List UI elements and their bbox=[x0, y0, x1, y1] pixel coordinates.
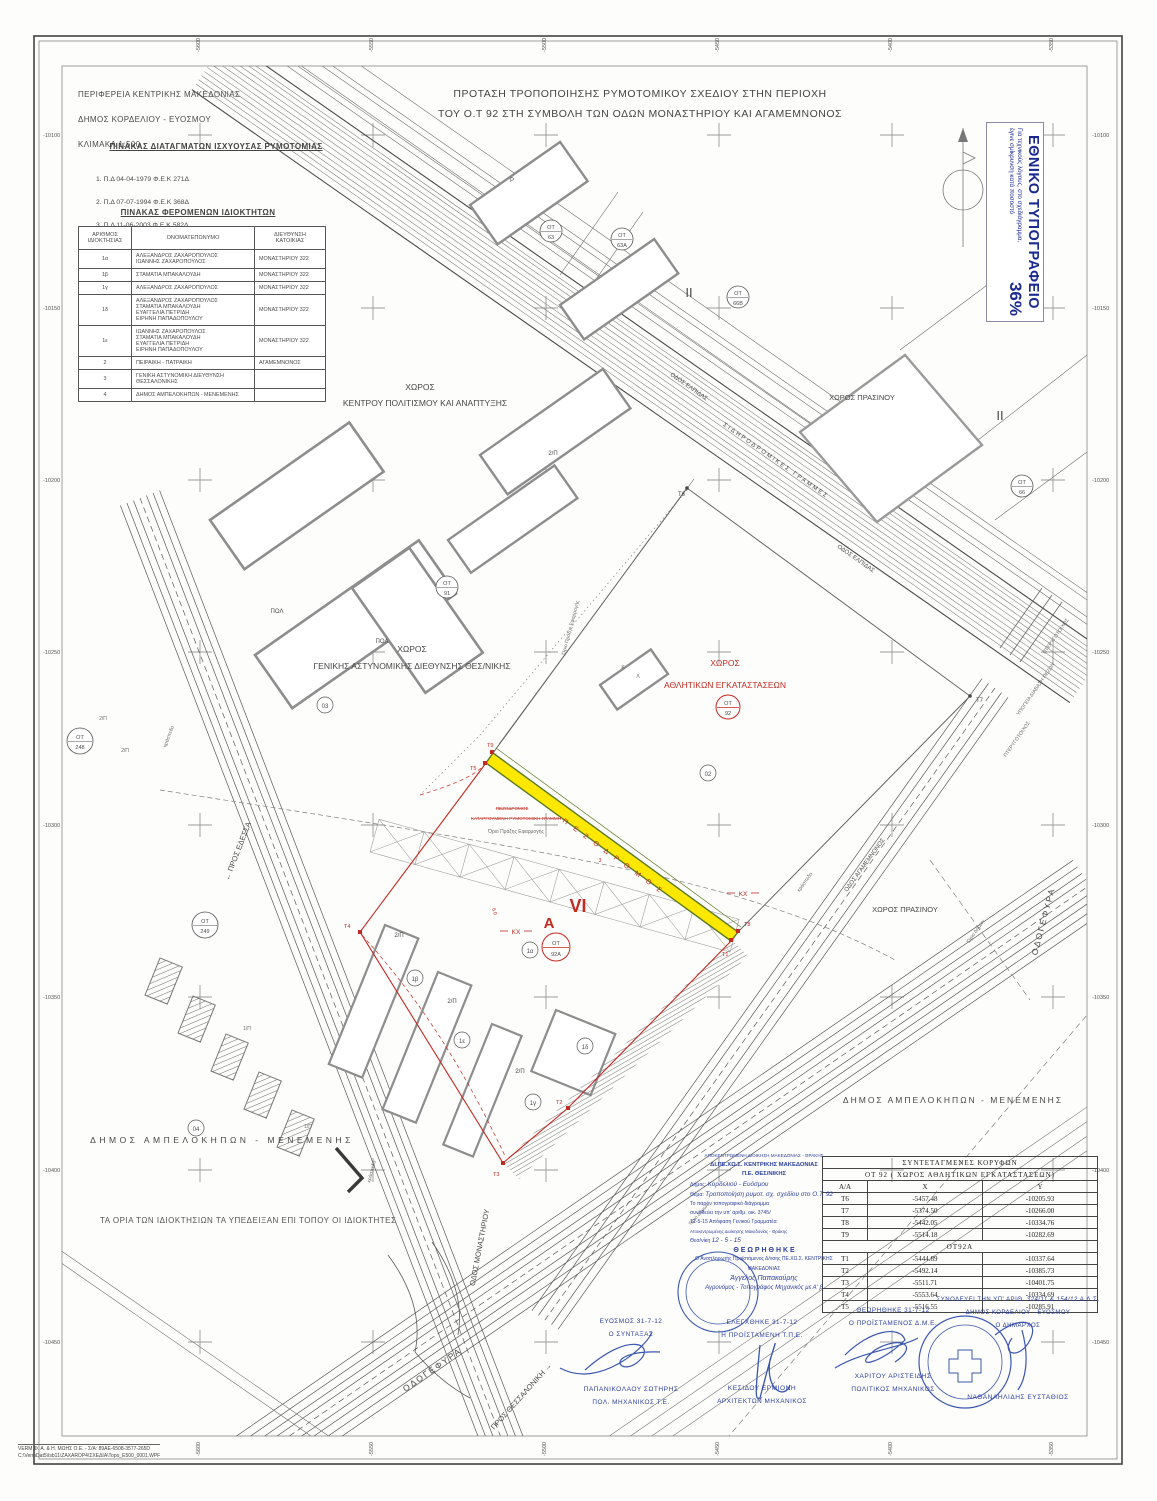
owners-col2: ΟΝΟΜΑΤΕΠΩΝΥΜΟ bbox=[132, 227, 255, 250]
tick: -10150 bbox=[1092, 306, 1109, 312]
label-struck-1: ΠΕΖΟΔΡΟΜΟΣ bbox=[496, 806, 529, 811]
label-t4: Τ4 bbox=[344, 924, 350, 930]
label-t7: Τ7 bbox=[976, 698, 984, 704]
coords-row: Τ2-5492.14-10385.73 bbox=[823, 1265, 1098, 1277]
national-printing-office-stamp: ΕΘΝΙΚΟ ΤΥΠΟΓΡΑΦΕΙΟ Για τεχνικούς λόγους,… bbox=[986, 122, 1044, 322]
coords-group-row: ΟΤ92Α bbox=[823, 1241, 1098, 1253]
tick: -5400 bbox=[888, 1442, 894, 1456]
label-zone-ii-2: II bbox=[996, 408, 1003, 423]
tick: -5500 bbox=[542, 1442, 548, 1456]
svg-text:66: 66 bbox=[1019, 490, 1025, 496]
owners-row: 1γΑΛΕΞΑΝΔΡΟΣ ΖΑΧΑΡΟΠΟΥΛΟΣΜΟΝΑΣΤΗΡΙΟΥ 322 bbox=[79, 282, 326, 295]
tick: -5450 bbox=[715, 38, 721, 52]
label-agamemnonos: ΟΔΟΣ ΑΓΑΜΕΜΝΟΝΟΣ bbox=[844, 837, 887, 893]
svg-text:ΟΤ: ΟΤ bbox=[552, 941, 560, 947]
tick: -10100 bbox=[1092, 133, 1109, 139]
tick: -5600 bbox=[196, 1442, 202, 1456]
tick: -10250 bbox=[43, 650, 60, 656]
id-03: 03 bbox=[317, 697, 333, 713]
plan-sheet: -5600 -5550 -5500 -5450 -5400 -5350 -560… bbox=[0, 0, 1157, 1501]
svg-text:ΟΤ: ΟΤ bbox=[724, 701, 732, 707]
tick: -10350 bbox=[1092, 995, 1109, 1001]
city-value: 12 - 5 - 15 bbox=[712, 1237, 741, 1244]
tick: -10450 bbox=[43, 1340, 60, 1346]
dipexos-theorithike: Θ Ε Ω Ρ Η Θ Η Κ Ε bbox=[690, 1246, 838, 1256]
label-struck-2: ΚΑΤΑΡΓΟΥΜΕΝΗ ΡΥΜΟΤΟΜΙΚΗ ΓΡΑΜΜΗ bbox=[471, 816, 561, 821]
owners-header-row: ΑΡΙΘΜΟΣ ΙΔΙΟΚΤΗΣΙΑΣ ΟΝΟΜΑΤΕΠΩΝΥΜΟ ΔΙΕΥΘΥ… bbox=[79, 227, 326, 250]
svg-text:03: 03 bbox=[322, 704, 329, 710]
dipexos-stamp: ΑΠΟΚΕΝΤΡΩΜΕΝΗ ΔΙΟΙΚΗΣΗ ΜΑΚΕΔΟΝΙΑΣ - ΘΡΑΚ… bbox=[690, 1151, 838, 1293]
owners-row: 4ΔΗΜΟΣ ΑΜΠΕΛΟΚΗΠΩΝ - ΜΕΝΕΜΕΝΗΣ bbox=[79, 389, 326, 402]
npo-note-1: Για τεχνικούς λόγους, στο σχεδιάγραμμα, bbox=[1015, 128, 1023, 242]
tick: -5550 bbox=[369, 38, 375, 52]
svg-text:92: 92 bbox=[725, 711, 731, 717]
svg-text:ΟΤ: ΟΤ bbox=[734, 291, 742, 297]
id-1d: 1δ bbox=[577, 1038, 593, 1054]
checked-name: ΚΕΣΙΔΟΥ ΕΡΜΙΟΝΗ bbox=[698, 1382, 826, 1395]
id-1a: 1α bbox=[522, 942, 538, 958]
coords-row: Τ6-5457.48-10205.93 bbox=[823, 1193, 1098, 1205]
coords-row: Τ1-5444.89-10337.64 bbox=[823, 1253, 1098, 1265]
owners-row: 1εΙΩΑΝΝΗΣ ΖΑΧΑΡΟΠΟΥΛΟΣ ΣΤΑΜΑΤΙΑ ΜΠΑΚΑΛΟΥ… bbox=[79, 326, 326, 357]
label-sector-a: Α bbox=[544, 915, 555, 932]
label-t6: Τ6 bbox=[678, 492, 686, 498]
tick: -10400 bbox=[43, 1168, 60, 1174]
label-1p-1: 1/Π bbox=[304, 1124, 312, 1130]
owners-col3: ΔΙΕΥΘΥΝΣΗ ΚΑΤΟΙΚΙΑΣ bbox=[255, 227, 326, 250]
svg-text:ΟΤ: ΟΤ bbox=[1018, 480, 1026, 486]
id-04: 04 bbox=[188, 1120, 204, 1136]
thema-value: Τροποποίηση ρυμοτ. σχ. σχεδίου στο Ο.Τ. … bbox=[705, 1191, 833, 1198]
dipexos-body-2: συνοδεύει την υπ' αριθμ. οικ. 3745/ bbox=[690, 1209, 838, 1218]
author-signature-block: ΕΥΟΣΜΟΣ 31-7-12 Ο ΣΥΝΤΑΞΑΣ ΠΑΠΑΝΙΚΟΛΑΟΥ … bbox=[566, 1315, 696, 1409]
tick: -10300 bbox=[1092, 823, 1109, 829]
truss-structures bbox=[370, 819, 739, 952]
svg-text:02: 02 bbox=[705, 772, 712, 778]
coords-row: Τ8-5442.05-10334.76 bbox=[823, 1217, 1098, 1229]
mayor-role: Ο ΔΗΜΑΡΧΟΣ bbox=[918, 1320, 1118, 1333]
mayor-line1b: Α.Δ.Σ. bbox=[1080, 1297, 1100, 1303]
label-choros-kentrou-1: ΧΩΡΟΣ bbox=[405, 382, 435, 392]
svg-text:ΟΤ: ΟΤ bbox=[618, 233, 626, 239]
owners-table-title: ΠΙΝΑΚΑΣ ΦΕΡΟΜΕΝΩΝ ΙΔΙΟΚΤΗΤΩΝ bbox=[88, 208, 308, 217]
label-kraspedo-1: κράσπεδο bbox=[161, 724, 176, 748]
label-t8: Τ8 bbox=[744, 922, 750, 928]
svg-text:1ε: 1ε bbox=[459, 1039, 465, 1045]
dipexos-name: Άγγελος Παπακαύρης bbox=[690, 1274, 838, 1284]
checked-role: Η ΠΡΟΪΣΤΑΜΕΝΗ Τ.Π.Ε. bbox=[698, 1329, 826, 1342]
owners-row: 1βΣΤΑΜΑΤΙΑ ΜΠΑΚΑΛΟΥΔΗΜΟΝΑΣΤΗΡΙΟΥ 322 bbox=[79, 269, 326, 282]
label-choros-kentrou-2: ΚΕΝΤΡΟΥ ΠΟΛΙΤΙΣΜΟΥ ΚΑΙ ΑΝΑΠΤΥΞΗΣ bbox=[343, 398, 507, 408]
west-small-buildings bbox=[145, 958, 314, 1156]
decrees-title: ΠΙΝΑΚΑΣ ΔΙΑΤΑΓΜΑΤΩΝ ΙΣΧΥΟΥΣΑΣ ΡΥΜΟΤΟΜΙΑΣ bbox=[96, 142, 336, 151]
npo-percent: 36% bbox=[1005, 282, 1025, 316]
dipexos-body-3: 12-5-15 Απόφαση Γενικού Γραμματέα bbox=[690, 1218, 838, 1227]
dipexos-title: Αγρονόμος - Τοπογράφος Μηχανικός με Α' β bbox=[690, 1284, 838, 1294]
label-pol-1: ΠΟΛ bbox=[271, 609, 284, 615]
vertex-coordinates-table: ΣΥΝΤΕΤΑΓΜΕΝΕΣ ΚΟΡΥΦΩΝ ΟΤ 92 ( ΧΩΡΟΣ ΑΘΛΗ… bbox=[822, 1156, 1098, 1313]
ot-248: ΟΤ248 bbox=[67, 728, 93, 754]
dipexos-body-1: Το παρόν τοπογραφικό διάγραμμα bbox=[690, 1200, 838, 1209]
author-role: Ο ΣΥΝΤΑΞΑΣ bbox=[566, 1328, 696, 1341]
label-ampelokipon-2: ΔΗΜΟΣ ΑΜΠΕΛΟΚΗΠΩΝ - ΜΕΝΕΜΕΝΗΣ bbox=[843, 1095, 1063, 1105]
tick: -5350 bbox=[1049, 38, 1055, 52]
title-line-2: ΤΟΥ Ο.Τ 92 ΣΤΗ ΣΥΜΒΟΛΗ ΤΩΝ ΟΔΩΝ ΜΟΝΑΣΤΗΡ… bbox=[330, 104, 950, 124]
svg-text:63Α: 63Α bbox=[617, 243, 627, 249]
point-t6-dot bbox=[685, 486, 689, 490]
ot-63a: ΟΤ63Α bbox=[611, 228, 633, 250]
footer-line-1: VERM Φ. Α. & Η. ΜΩΗΣ Ο.Ε. - Σ/Α: 89ΑΕ-65… bbox=[18, 1446, 160, 1453]
svg-text:1δ: 1δ bbox=[582, 1045, 589, 1051]
tick: -5600 bbox=[196, 38, 202, 52]
svg-text:249: 249 bbox=[200, 929, 209, 935]
label-2p-2: 2/Π bbox=[394, 933, 403, 939]
coords-title: ΣΥΝΤΕΤΑΓΜΕΝΕΣ ΚΟΡΥΦΩΝ bbox=[823, 1157, 1098, 1169]
svg-text:ΟΤ: ΟΤ bbox=[547, 225, 555, 231]
label-gad-1: ΧΩΡΟΣ bbox=[397, 644, 427, 654]
label-t5: Τ5 bbox=[470, 766, 476, 772]
owners-indication-note: ΤΑ ΟΡΙΑ ΤΩΝ ΙΔΙΟΚΤΗΣΙΩΝ ΤΑ ΥΠΕΔΕΙΞΑΝ ΕΠΙ… bbox=[100, 1216, 396, 1225]
plot-footer: VERM Φ. Α. & Η. ΜΩΗΣ Ο.Ε. - Σ/Α: 89ΑΕ-65… bbox=[18, 1444, 160, 1460]
kerb-corner bbox=[336, 1148, 362, 1192]
label-gad-2: ΓΕΝΙΚΗΣ ΑΣΤΥΝΟΜΙΚΗΣ ΔΙΕΘΥΝΣΗΣ ΘΕΣ/ΝΙΚΗΣ bbox=[313, 661, 510, 671]
tick: -10150 bbox=[43, 306, 60, 312]
ot-66b: ΟΤ66Β bbox=[727, 286, 749, 308]
dipexos-body-4: Αποκεντρωμένης Διοίκησης Μακεδονίας - Θρ… bbox=[690, 1227, 838, 1236]
label-athlitikon-1: ΧΩΡΟΣ bbox=[710, 658, 740, 668]
ot-63: ΟΤ63 bbox=[540, 220, 562, 242]
label-elpidas-1: ΟΔΟΣ ΕΛΠΙΔΑΣ bbox=[669, 372, 709, 402]
dimos-value: Κορδελιού - Ευόσμου bbox=[708, 1181, 769, 1188]
bottom-left-road-lines bbox=[54, 1250, 330, 1445]
dipexos-line3: Π.Ε. ΘΕΣ/ΝΙΚΗΣ bbox=[690, 1170, 838, 1180]
owners-col1: ΑΡΙΘΜΟΣ ΙΔΙΟΚΤΗΣΙΑΣ bbox=[79, 227, 132, 250]
coords-subtitle: ΟΤ 92 ( ΧΩΡΟΣ ΑΘΛΗΤΙΚΩΝ ΕΓΚΑΤΑΣΤΑΣΕΩΝ) bbox=[823, 1169, 1098, 1181]
checked-title: ΑΡΧΙΤΕΚΤΩΝ ΜΗΧΑΝΙΚΟΣ bbox=[698, 1395, 826, 1408]
label-odogefyra-2: ΟΔΟΓΕΦΥΡΑ bbox=[1029, 886, 1057, 956]
ot-91: ΟΤ91 bbox=[436, 576, 458, 598]
dimos-label: Δήμος: bbox=[690, 1182, 706, 1188]
tick: -5500 bbox=[542, 38, 548, 52]
label-dim-3: 3 bbox=[599, 858, 602, 864]
mayor-name: ΝΑΘΑΝΑΗΛΙΔΗΣ ΕΥΣΤΑΘΙΟΣ bbox=[918, 1391, 1118, 1404]
drawing-title: ΠΡΟΤΑΣΗ ΤΡΟΠΟΠΟΙΗΣΗΣ ΡΥΜΟΤΟΜΙΚΟΥ ΣΧΕΔΙΟΥ… bbox=[330, 84, 950, 124]
label-sector-vi: VI bbox=[569, 896, 586, 916]
block-ot92-boundary bbox=[493, 488, 970, 932]
label-prasinou-2: ΧΩΡΟΣ ΠΡΑΣΙΝΟΥ bbox=[872, 905, 938, 914]
mayor-signature-block: ΣΥΝΟΔΕΥΕΙ ΤΗΝ ΥΠ' ΑΡΙΘ. 324/11 & 154/12 … bbox=[918, 1294, 1118, 1404]
coords-row: Τ3-5511.71-10401.75 bbox=[823, 1277, 1098, 1289]
label-monastiriou: ΟΔΟΣ ΜΟΝΑΣΤΗΡΙΟΥ bbox=[468, 1208, 492, 1286]
svg-text:63: 63 bbox=[548, 235, 554, 241]
svg-text:66Β: 66Β bbox=[733, 301, 743, 307]
owners-row: 1δΑΛΕΞΑΝΔΡΟΣ ΖΑΧΑΡΟΠΟΥΛΟΣ ΣΤΑΜΑΤΙΑ ΜΠΑΚΑ… bbox=[79, 295, 326, 326]
label-athlitikon-2: ΑΘΛΗΤΙΚΩΝ ΕΓΚΑΤΑΣΤΑΣΕΩΝ bbox=[664, 680, 786, 690]
tick: -10200 bbox=[43, 478, 60, 484]
label-p-building: P bbox=[510, 178, 514, 184]
ot-249: ΟΤ249 bbox=[192, 912, 218, 938]
dipexos-line1: ΑΠΟΚΕΝΤΡΩΜΕΝΗ ΔΙΟΙΚΗΣΗ ΜΑΚΕΔΟΝΙΑΣ - ΘΡΑΚ… bbox=[690, 1151, 838, 1161]
label-ampelokipon-1: ΔΗΜΟΣ ΑΜΠΕΛΟΚΗΠΩΝ - ΜΕΝΕΜΕΝΗΣ bbox=[90, 1135, 354, 1145]
decree-item: 1. Π.Δ 04-04-1979 Φ.Ε.Κ 271Δ bbox=[96, 168, 189, 191]
ot-66: ΟΤ66 bbox=[1011, 475, 1033, 497]
svg-text:ΟΤ: ΟΤ bbox=[201, 919, 209, 925]
tick: -10300 bbox=[43, 823, 60, 829]
svg-text:1γ: 1γ bbox=[530, 1101, 536, 1107]
tick: -10350 bbox=[43, 995, 60, 1001]
checked-line1: ΕΛΕΓΧΘΗΚΕ 31-7-12 bbox=[698, 1316, 826, 1329]
footer-line-2: C:\VermDat5\Isb11\ZAXAROP4\ΣΧΕΔΙΑ\Topo_E… bbox=[18, 1453, 160, 1460]
tick: -5550 bbox=[369, 1442, 375, 1456]
id-02: 02 bbox=[700, 765, 716, 781]
label-t9: Τ9 bbox=[487, 743, 493, 749]
label-dim-50: 5.0 bbox=[490, 907, 498, 916]
label-zone-ii-1: II bbox=[685, 285, 692, 300]
coords-header-row: Α/Α Χ Υ bbox=[823, 1181, 1098, 1193]
svg-text:248: 248 bbox=[75, 745, 84, 751]
pedestrian-band-fill bbox=[486, 753, 738, 941]
region-line: ΠΕΡΙΦΕΡΕΙΑ ΚΕΝΤΡΙΚΗΣ ΜΑΚΕΔΟΝΙΑΣ bbox=[78, 82, 240, 107]
label-kx-2: ΚΧ bbox=[739, 891, 748, 898]
thema-label: Θέμα: bbox=[690, 1192, 704, 1198]
label-t3: Τ3 bbox=[493, 1172, 499, 1178]
label-2p-3: 2/Π bbox=[447, 999, 456, 1005]
mayor-municipality: ΔΗΜΟΣ ΚΟΡΔΕΛΙΟΥ - ΕΥΟΣΜΟΥ bbox=[918, 1307, 1118, 1320]
id-1e: 1ε bbox=[454, 1032, 470, 1048]
tick: -5400 bbox=[888, 38, 894, 52]
label-elpidas-2: ΟΔΟΣ ΕΛΠΙΔΑΣ bbox=[836, 544, 876, 574]
tick: -10100 bbox=[43, 133, 60, 139]
dipexos-line2: ΔΙ.ΠΕ.ΧΩ.Σ. ΚΕΝΤΡΙΚΗΣ ΜΑΚΕΔΟΝΙΑΣ bbox=[690, 1161, 838, 1171]
svg-text:ΟΤ: ΟΤ bbox=[76, 735, 84, 741]
label-pros-thessaloniki: ΠΡΟΣ ΘΕΣΣΑΛΟΝΙΚΗ → bbox=[489, 1361, 553, 1431]
tick: -10200 bbox=[1092, 478, 1109, 484]
ot-92a-red: ΟΤ92Α bbox=[542, 933, 570, 961]
tick: -5450 bbox=[715, 1442, 721, 1456]
coords-row: Τ9-5514.18-10282.69 bbox=[823, 1229, 1098, 1241]
checked-signature-block: ΕΛΕΓΧΘΗΚΕ 31-7-12 Η ΠΡΟΪΣΤΑΜΕΝΗ Τ.Π.Ε. Κ… bbox=[698, 1316, 826, 1408]
owners-row: 3ΓΕΝΙΚΗ ΑΣΤΥΝΟΜΙΚΗ ΔΙΕΥΘΥΝΣΗ ΘΕΣΣΑΛΟΝΙΚΗ… bbox=[79, 370, 326, 389]
npo-note-2: έγινε σμίκρυνση κατά ποσοστό bbox=[1007, 128, 1015, 242]
author-place-date: ΕΥΟΣΜΟΣ 31-7-12 bbox=[566, 1315, 696, 1328]
npo-title: ΕΘΝΙΚΟ ΤΥΠΟΓΡΑΦΕΙΟ bbox=[1025, 128, 1041, 316]
label-2p-4: 2/Π bbox=[515, 1069, 524, 1075]
point-t7-dot bbox=[968, 694, 972, 698]
municipality-line: ΔΗΜΟΣ ΚΟΡΔΕΛΙΟΥ - ΕΥΟΣΜΟΥ bbox=[78, 107, 240, 132]
label-pterygotoichos-2: ΠΤΕΡΥΓΟΤΟΙΧΟΣ bbox=[1003, 721, 1032, 759]
svg-text:ΟΤ: ΟΤ bbox=[443, 581, 451, 587]
label-1p-2: 1/Π bbox=[243, 1026, 251, 1032]
label-kx-1: ΚΧ bbox=[512, 929, 521, 936]
owners-row: 2ΠΕΙΡΑΙΚΗ - ΠΑΤΡΑΙΚΗΑΓΑΜΕΜΝΟΝΟΣ bbox=[79, 357, 326, 370]
north-arrow bbox=[943, 128, 983, 247]
svg-text:1β: 1β bbox=[412, 977, 419, 983]
owners-row: 1αΑΛΕΞΑΝΔΡΟΣ ΖΑΧΑΡΟΠΟΥΛΟΣ ΙΩΑΝΝΗΣ ΖΑΧΑΡΟ… bbox=[79, 250, 326, 269]
mayor-line1: ΣΥΝΟΔΕΥΕΙ ΤΗΝ ΥΠ' ΑΡΙΘ. bbox=[937, 1297, 1025, 1303]
owners-table: ΑΡΙΘΜΟΣ ΙΔΙΟΚΤΗΣΙΑΣ ΟΝΟΜΑΤΕΠΩΝΥΜΟ ΔΙΕΥΘΥ… bbox=[78, 226, 326, 402]
tick: -5350 bbox=[1049, 1442, 1055, 1456]
label-kraspedo-2: κράσπεδο bbox=[795, 871, 814, 894]
tick: -10250 bbox=[1092, 650, 1109, 656]
city-label: Θεσ/νίκη bbox=[690, 1238, 710, 1244]
svg-text:1α: 1α bbox=[527, 949, 534, 955]
id-1b: 1β bbox=[407, 970, 423, 986]
label-pol-2: ΠΟΛ bbox=[376, 639, 389, 645]
label-pros-edessa: ← ΠΡΟΣ ΕΔΕΣΣΑ bbox=[222, 821, 253, 882]
label-2p-6: 2/Π bbox=[121, 748, 129, 754]
title-line-1: ΠΡΟΤΑΣΗ ΤΡΟΠΟΠΟΙΗΣΗΣ ΡΥΜΟΤΟΜΙΚΟΥ ΣΧΕΔΙΟΥ… bbox=[330, 84, 950, 104]
author-name: ΠΑΠΑΝΙΚΟΛΑΟΥ ΣΩΤΗΡΗΣ bbox=[566, 1383, 696, 1396]
mayor-ref: 324/11 & 154/12 bbox=[1027, 1297, 1078, 1303]
coords-row: Τ7-5374.50-10266.00 bbox=[823, 1205, 1098, 1217]
author-title: ΠΟΛ. ΜΗΧΑΝΙΚΟΣ Τ.Ε. bbox=[566, 1396, 696, 1409]
label-t1: Τ1 bbox=[722, 952, 728, 958]
label-orio-praxis-1: Όριο Πράξης Εφαρμογής bbox=[487, 828, 544, 835]
label-2p-1: 2/Π bbox=[548, 451, 557, 457]
label-prasinou-1: ΧΩΡΟΣ ΠΡΑΣΙΝΟΥ bbox=[829, 393, 895, 402]
ot-92-red: ΟΤ92 bbox=[716, 695, 740, 719]
dipexos-role: Ο Αναπληρωτής Προϊστάμενος Δ/νσης ΠΕ.ΧΩ.… bbox=[690, 1255, 838, 1274]
id-1c: 1γ bbox=[525, 1094, 541, 1110]
svg-text:91: 91 bbox=[444, 591, 450, 597]
svg-text:92Α: 92Α bbox=[551, 952, 561, 958]
label-t2: Τ2 bbox=[556, 1100, 562, 1106]
label-2p-5: 2/Π bbox=[99, 716, 107, 722]
svg-text:04: 04 bbox=[193, 1127, 200, 1133]
